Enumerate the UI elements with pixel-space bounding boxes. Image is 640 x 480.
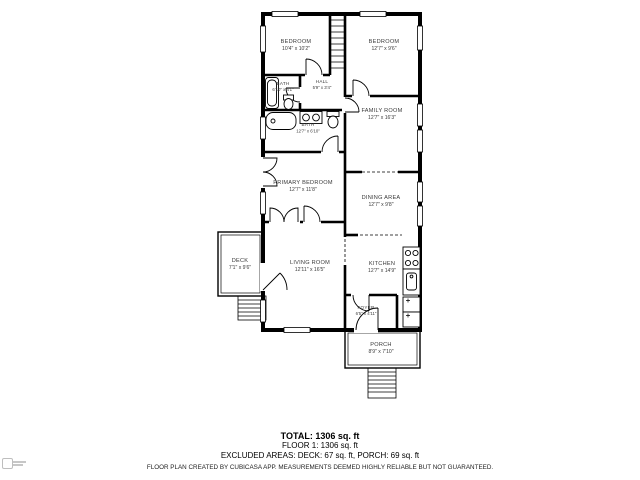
svg-text:8'9" x 7'10": 8'9" x 7'10" [368, 349, 393, 355]
room-label-hall: HALL 5'9" x 3'4" [313, 79, 332, 90]
room-label-bedroom-right: BEDROOM 12'7" x 9'6" [369, 39, 400, 52]
watermark-mark-icon [2, 458, 13, 469]
room-label-porch: PORCH 8'9" x 7'10" [368, 342, 393, 355]
area-summary: TOTAL: 1306 sq. ft FLOOR 1: 1306 sq. ft … [0, 431, 640, 471]
svg-text:BATH: BATH [277, 81, 290, 86]
svg-text:5'9" x 3'4": 5'9" x 3'4" [313, 85, 332, 90]
room-label-deck: DECK 7'1" x 9'6" [229, 258, 251, 271]
svg-text:6'10" x 4'1": 6'10" x 4'1" [272, 87, 294, 92]
svg-text:DECK: DECK [232, 258, 249, 264]
room-label-family-room: FAMILY ROOM 12'7" x 16'3" [361, 108, 402, 121]
svg-text:12'7" x 14'9": 12'7" x 14'9" [368, 268, 396, 274]
room-label-kitchen: KITCHEN 12'7" x 14'9" [368, 261, 396, 274]
summary-floor1: FLOOR 1: 1306 sq. ft [0, 441, 640, 451]
appliance-icon [403, 297, 420, 327]
toilet-icon [327, 112, 339, 129]
floorplan-drawing: BEDROOM 10'4" x 10'2" BEDROOM 12'7" x 9'… [0, 0, 640, 480]
svg-text:7'1" x 9'6": 7'1" x 9'6" [229, 265, 251, 271]
svg-text:12'11" x 16'5": 12'11" x 16'5" [295, 267, 326, 273]
svg-text:DINING AREA: DINING AREA [362, 195, 401, 201]
svg-text:BATH: BATH [302, 122, 315, 127]
svg-text:12'7" x 9'8": 12'7" x 9'8" [368, 202, 393, 208]
kitchen-sink-icon [403, 269, 420, 295]
stove-icon [403, 247, 420, 269]
svg-text:LIVING ROOM: LIVING ROOM [290, 260, 330, 266]
svg-text:10'4" x 10'2": 10'4" x 10'2" [282, 46, 310, 52]
exterior-walls [263, 14, 420, 330]
svg-text:12'7" x 11'8": 12'7" x 11'8" [289, 187, 317, 193]
svg-text:6'5" x 4'11": 6'5" x 4'11" [356, 311, 377, 316]
deck-outline [218, 232, 263, 296]
summary-disclaimer: FLOOR PLAN CREATED BY CUBICASA APP. MEAS… [0, 464, 640, 471]
room-label-bedroom-left: BEDROOM 10'4" x 10'2" [281, 39, 312, 52]
room-label-primary-bedroom: PRIMARY BEDROOM 12'7" x 11'8" [273, 180, 333, 193]
svg-text:BEDROOM: BEDROOM [281, 39, 312, 45]
svg-text:FOYER: FOYER [357, 305, 375, 310]
svg-text:BEDROOM: BEDROOM [369, 39, 400, 45]
svg-text:HALL: HALL [316, 79, 329, 84]
upper-staircase [331, 20, 344, 68]
summary-total: TOTAL: 1306 sq. ft [0, 431, 640, 441]
summary-excluded-areas: EXCLUDED AREAS: DECK: 67 sq. ft, PORCH: … [0, 451, 640, 461]
svg-text:PORCH: PORCH [370, 342, 391, 348]
svg-text:PRIMARY BEDROOM: PRIMARY BEDROOM [273, 180, 333, 186]
floorplan-page: BEDROOM 10'4" x 10'2" BEDROOM 12'7" x 9'… [0, 0, 640, 480]
room-label-living-room: LIVING ROOM 12'11" x 16'5" [290, 260, 330, 273]
cased-openings [345, 172, 402, 263]
svg-text:FAMILY ROOM: FAMILY ROOM [361, 108, 402, 114]
room-label-dining-area: DINING AREA 12'7" x 9'8" [362, 195, 401, 208]
porch-stairs [368, 368, 396, 398]
interior-walls [263, 14, 420, 330]
bathtub-icon [266, 113, 296, 130]
svg-text:12'7" x 6'10": 12'7" x 6'10" [296, 129, 320, 134]
toilet-icon [284, 95, 294, 110]
svg-text:12'7" x 9'6": 12'7" x 9'6" [371, 46, 396, 52]
room-label-foyer: FOYER 6'5" x 4'11" [356, 305, 377, 316]
svg-text:12'7" x 16'3": 12'7" x 16'3" [368, 115, 396, 121]
watermark-logo [2, 452, 28, 470]
room-label-bath-small: BATH 6'10" x 4'1" [272, 81, 294, 92]
svg-text:KITCHEN: KITCHEN [369, 261, 395, 267]
